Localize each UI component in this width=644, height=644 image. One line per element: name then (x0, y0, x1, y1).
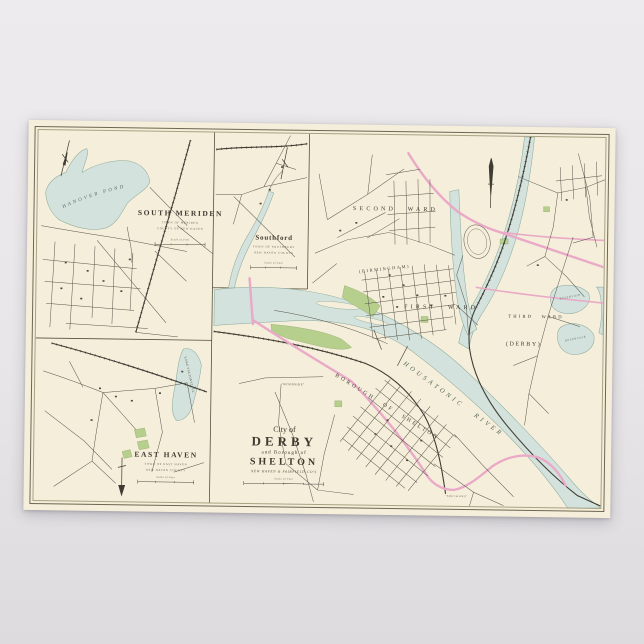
map-title-line3: and Borough of (261, 450, 306, 456)
south-end-label: "SOUTH END" (445, 495, 467, 498)
map-plate-inner-border: HANOVER POND SOUTH MERIDEN TOWN OF MERID… (32, 129, 606, 509)
scale-bar (155, 242, 205, 247)
scale-label: Scale of Feet (274, 478, 293, 481)
main-map: SECOND WARD FIRST WARD THIRD WARD (BIRMI… (211, 133, 605, 508)
map-plate-border: HANOVER POND SOUTH MERIDEN TOWN OF MERID… (29, 126, 609, 512)
borough-of-shelton-label: BOROUGH OF SHELTON (333, 373, 441, 442)
compass-icon (488, 158, 495, 208)
poster-backdrop: HANOVER POND SOUTH MERIDEN TOWN OF MERID… (0, 0, 644, 644)
third-ward-label: THIRD WARD (508, 314, 564, 320)
map-title-line2: DERBY (251, 433, 317, 449)
inset-subtitle: TOWN OF EAST HAVEN (144, 463, 187, 467)
scale-bar (138, 480, 194, 485)
inset-subtitle: TOWN OF MERIDEN (162, 221, 199, 225)
birmingham-label: (BIRMINGHAM) (359, 263, 411, 273)
riverside-park (271, 324, 352, 349)
inset-south-meriden: HANOVER POND SOUTH MERIDEN TOWN OF MERID… (40, 138, 224, 337)
scale-label: Scale of Feet (264, 262, 283, 265)
inset-east-haven: LAKE SALTONSTALL EAST HAVEN TOWN OF EAST… (42, 343, 208, 496)
map-title-line5: NEW HAVEN & FAIRFIELD CO'S (250, 469, 317, 474)
scale-label: Scale of Feet (171, 238, 190, 241)
inset-southford: Southford TOWN OF SOUTHBURY NEW HAVEN CO… (214, 135, 307, 289)
map-title-line1: City of (273, 425, 296, 434)
compass-icon (118, 457, 127, 495)
scale-bar (251, 265, 297, 270)
atlas-map-svg: HANOVER POND SOUTH MERIDEN TOWN OF MERID… (33, 130, 605, 508)
derby-label: (DERBY) (506, 340, 542, 347)
map-title-line4: SHELTON (250, 456, 318, 468)
inset-subtitle: TOWN OF SOUTHBURY (253, 245, 295, 249)
inset-title: SOUTH MERIDEN (138, 208, 223, 218)
scale-label: Scale of Feet (156, 476, 175, 479)
inset-title: EAST HAVEN (134, 450, 198, 460)
map-poster: HANOVER POND SOUTH MERIDEN TOWN OF MERID… (23, 120, 615, 518)
inset-subtitle: COUNTY OF NEW HAVEN (157, 227, 203, 231)
inset-subtitle: NEW HAVEN COUNTY (254, 251, 294, 255)
inset-title: Southford (255, 234, 293, 243)
map-title-block: City of DERBY and Borough of SHELTON NEW… (244, 424, 325, 486)
first-ward-label: FIRST WARD (404, 304, 478, 311)
woodside-label: "WOODSIDE" (281, 382, 305, 386)
hanover-pond (45, 148, 150, 230)
inset-subtitle: NEW HAVEN COUNTY (146, 469, 186, 473)
second-ward-label: SECOND WARD (353, 206, 438, 213)
